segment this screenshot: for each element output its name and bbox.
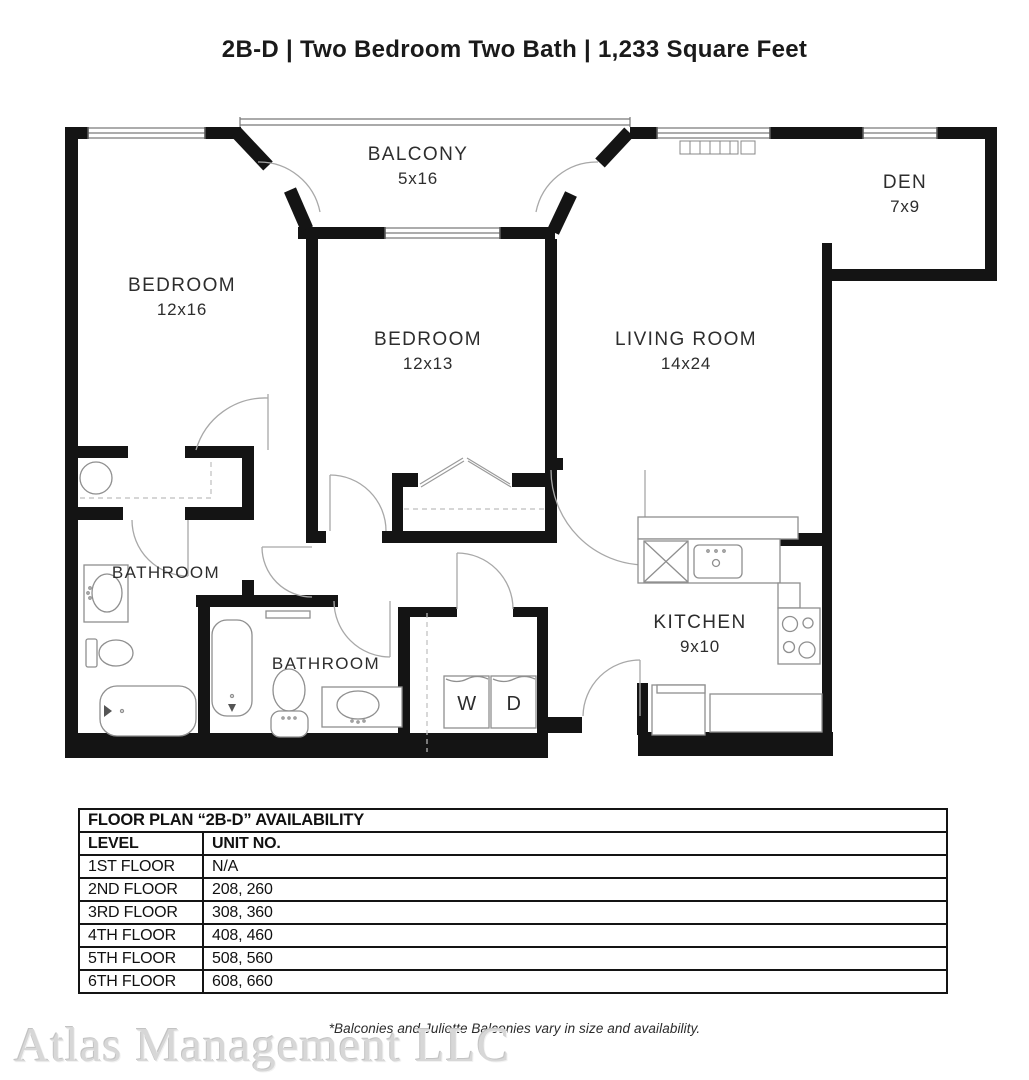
laundry-door [457, 553, 513, 609]
units-cell: 608, 660 [203, 970, 947, 993]
floor-plan-sheet: 2B-D | Two Bedroom Two Bath | 1,233 Squa… [0, 0, 1029, 1080]
living-room-hall-door [551, 470, 645, 565]
balcony-label: BALCONY [368, 144, 469, 165]
kitchen-sink [694, 545, 742, 578]
bathroom-middle-door [334, 601, 390, 657]
availability-table-header-row: LEVEL UNIT NO. [79, 832, 947, 855]
level-cell: 6TH FLOOR [79, 970, 203, 993]
towel-bar [266, 611, 310, 618]
washer-label: W [457, 693, 476, 715]
window-bedroom-left [88, 127, 205, 139]
availability-table-title: FLOOR PLAN “2B-D” AVAILABILITY [79, 809, 947, 832]
stove [778, 608, 820, 664]
units-cell: N/A [203, 855, 947, 878]
bedroom-middle-dims: 12x13 [403, 354, 453, 373]
wall-heater [680, 141, 755, 154]
bathroom-middle-label: BATHROOM [272, 654, 380, 673]
bathroom-left-label: BATHROOM [112, 563, 220, 582]
level-cell: 4TH FLOOR [79, 924, 203, 947]
fixtures [80, 462, 822, 737]
balcony-left-door-arc [258, 162, 320, 212]
level-cell: 1ST FLOOR [79, 855, 203, 878]
availability-table-title-row: FLOOR PLAN “2B-D” AVAILABILITY [79, 809, 947, 832]
table-row-4th-floor: 4TH FLOOR 408, 460 [79, 924, 947, 947]
window-living-room [657, 127, 770, 139]
den-dims: 7x9 [890, 197, 920, 216]
bathroom-left-toilet [86, 639, 133, 667]
window-bedroom-middle [385, 227, 500, 239]
bathroom-middle-tub [212, 620, 252, 716]
units-cell: 208, 260 [203, 878, 947, 901]
bedroom-middle-label: BEDROOM [374, 329, 482, 350]
dishwasher [644, 541, 688, 582]
window-den [863, 127, 937, 139]
kitchen-dims: 9x10 [680, 637, 720, 656]
level-cell: 2ND FLOOR [79, 878, 203, 901]
table-row-3rd-floor: 3RD FLOOR 308, 360 [79, 901, 947, 924]
bedroom-left-dims: 12x16 [157, 300, 207, 319]
bedroom-left-label: BEDROOM [128, 275, 236, 296]
balcony-dims: 5x16 [398, 169, 438, 188]
table-row-2nd-floor: 2ND FLOOR 208, 260 [79, 878, 947, 901]
level-cell: 3RD FLOOR [79, 901, 203, 924]
column-header-unit-no: UNIT NO. [203, 832, 947, 855]
bedroom-middle-door [330, 475, 386, 531]
hall-door [262, 547, 312, 597]
table-row-6th-floor: 6TH FLOOR 608, 660 [79, 970, 947, 993]
availability-table: FLOOR PLAN “2B-D” AVAILABILITY LEVEL UNI… [78, 808, 948, 994]
living-room-label: LIVING ROOM [615, 329, 757, 350]
table-row-1st-floor: 1ST FLOOR N/A [79, 855, 947, 878]
column-header-level: LEVEL [79, 832, 203, 855]
units-cell: 508, 560 [203, 947, 947, 970]
bathroom-middle-toilet [271, 669, 308, 737]
den-label: DEN [883, 172, 927, 193]
table-row-5th-floor: 5TH FLOOR 508, 560 [79, 947, 947, 970]
units-cell: 308, 360 [203, 901, 947, 924]
kitchen-label: KITCHEN [653, 612, 746, 633]
refrigerator [652, 685, 705, 735]
entry-door [583, 660, 640, 716]
bathroom-middle-vanity [322, 687, 402, 727]
bedroom-left-door [196, 394, 268, 450]
dryer-label: D [507, 693, 522, 715]
balcony-railing [240, 117, 630, 127]
closet-bifold-doors [420, 458, 511, 487]
bathroom-left-tub [100, 686, 196, 736]
walls [65, 127, 997, 758]
level-cell: 5TH FLOOR [79, 947, 203, 970]
watermark: Atlas Management LLC [14, 1016, 510, 1073]
closet-stool [80, 462, 112, 494]
windows [88, 127, 937, 239]
units-cell: 408, 460 [203, 924, 947, 947]
living-room-dims: 14x24 [661, 354, 711, 373]
